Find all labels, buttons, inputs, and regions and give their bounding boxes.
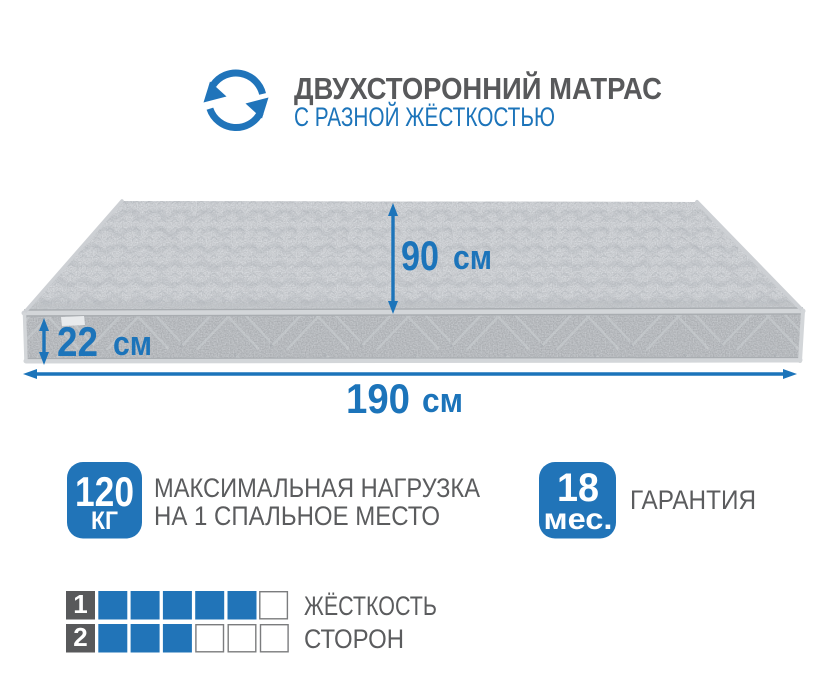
svg-text:22: 22 (57, 318, 98, 365)
svg-text:С РАЗНОЙ ЖЁСТКОСТЬЮ: С РАЗНОЙ ЖЁСТКОСТЬЮ (294, 101, 555, 132)
svg-text:ДВУХСТОРОННИЙ МАТРАС: ДВУХСТОРОННИЙ МАТРАС (294, 70, 662, 106)
svg-text:ГАРАНТИЯ: ГАРАНТИЯ (630, 485, 756, 515)
svg-text:МАКСИМАЛЬНАЯ НАГРУЗКА: МАКСИМАЛЬНАЯ НАГРУЗКА (154, 473, 480, 503)
svg-text:90: 90 (401, 232, 439, 279)
svg-text:см: см (453, 239, 492, 277)
svg-text:2: 2 (73, 622, 87, 652)
svg-text:СТОРОН: СТОРОН (304, 624, 404, 654)
svg-text:мес.: мес. (544, 503, 613, 536)
svg-text:190: 190 (346, 375, 410, 422)
svg-text:1: 1 (73, 589, 87, 619)
svg-text:см: см (113, 325, 152, 363)
svg-text:см: см (422, 382, 463, 420)
svg-text:КГ: КГ (91, 507, 118, 535)
svg-text:ЖЁСТКОСТЬ: ЖЁСТКОСТЬ (304, 591, 437, 621)
svg-text:НА 1 СПАЛЬНОЕ МЕСТО: НА 1 СПАЛЬНОЕ МЕСТО (154, 501, 440, 531)
